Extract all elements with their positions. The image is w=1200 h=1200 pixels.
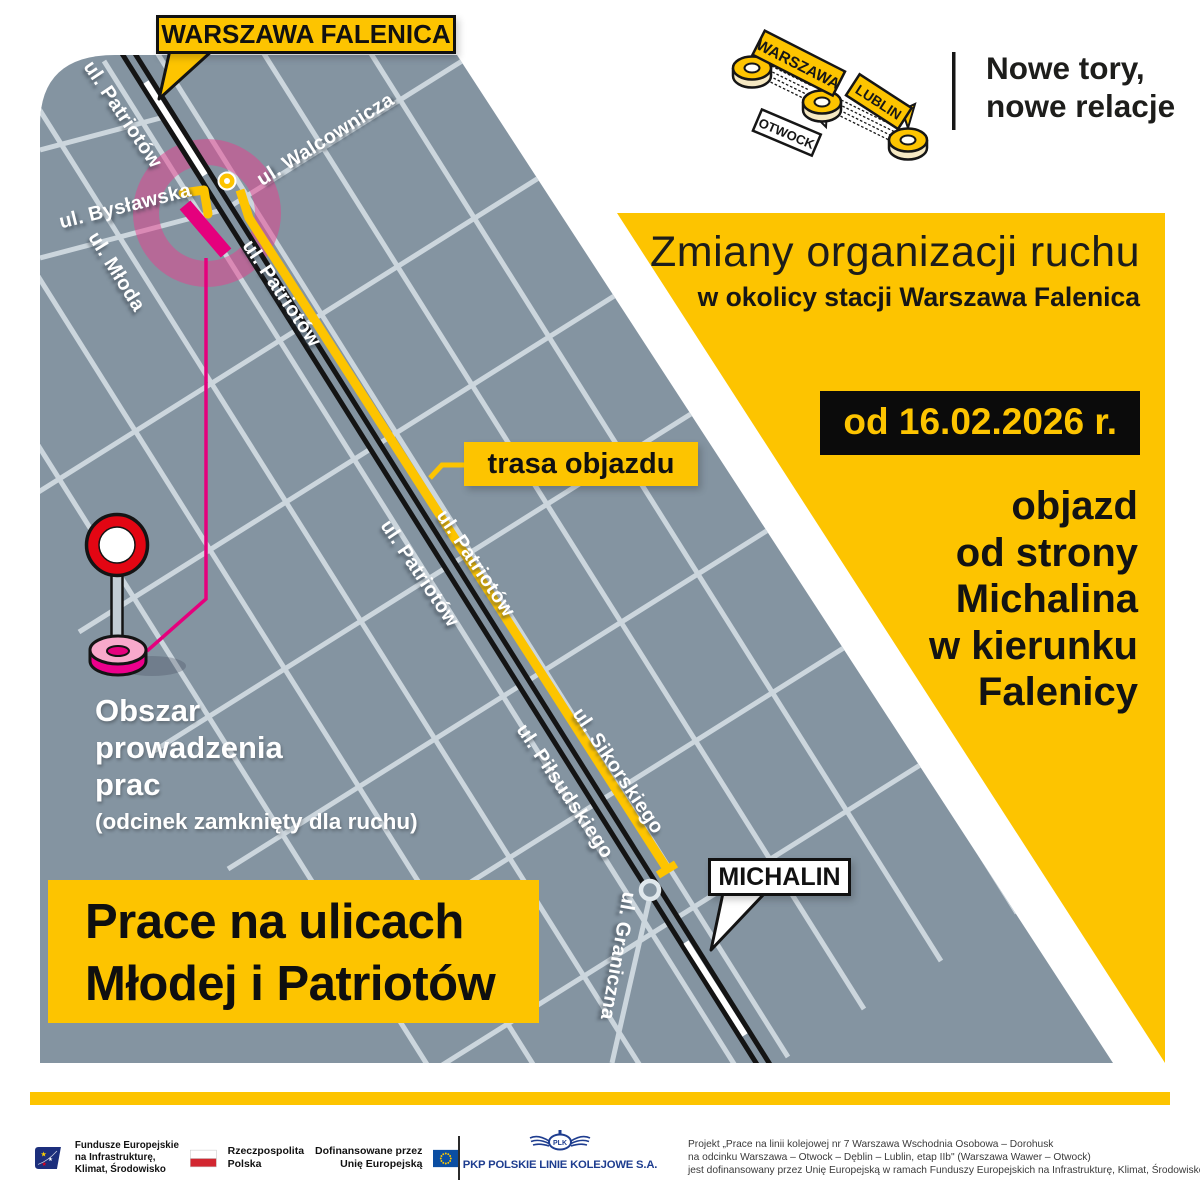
tagline-line1: Nowe tory,	[986, 50, 1175, 88]
work-area-note: (odcinek zamknięty dla ruchu)	[95, 809, 418, 835]
project-line1: Projekt „Prace na linii kolejowej nr 7 W…	[688, 1139, 1200, 1152]
fe-star-red-icon: ★	[41, 1161, 46, 1168]
rail-network-logo: WARSZAWA LUBLIN OTWOCK	[733, 30, 956, 159]
pkp-logo: PLK PKP POLSKIE LINIE KOLEJOWE S.A.	[462, 1127, 658, 1171]
footer-logos: ★ ★ ★ Fundusze Europejskie na Infrastruk…	[35, 1130, 459, 1186]
station-disc-lublin	[889, 129, 927, 160]
michalin-callout-label: MICHALIN	[718, 863, 840, 892]
falenica-callout-label: WARSZAWA FALENICA	[161, 19, 450, 50]
info-subtitle: w okolicy stacji Warszawa Falenica	[698, 282, 1140, 313]
tagline: Nowe tory, nowe relacje	[986, 50, 1175, 125]
project-description: Projekt „Prace na linii kolejowej nr 7 W…	[688, 1139, 1200, 1178]
roundabout	[641, 881, 659, 899]
eu-program-text: Fundusze Europejskie na Infrastrukturę, …	[75, 1140, 179, 1177]
project-line3: jest dofinansowany przez Unię Europejską…	[688, 1165, 1200, 1178]
eu-program-line3: Klimat, Środowisko	[75, 1164, 179, 1176]
eu-program-logo: ★ ★ ★	[35, 1137, 64, 1179]
eu-flag-icon	[433, 1143, 459, 1174]
logo-divider	[952, 52, 956, 130]
poland-line2: Polska	[228, 1158, 304, 1171]
project-line2: na odcinku Warszawa – Otwock – Dęblin – …	[688, 1152, 1200, 1165]
eu-funding-line1: Dofinansowane przez	[315, 1145, 422, 1158]
work-area-line1: Obszar	[95, 692, 418, 729]
no-entry-sign-center	[99, 527, 135, 563]
eu-funding-line2: Unię Europejską	[315, 1158, 422, 1171]
headline-banner: Prace na ulicach Młodej i Patriotów	[48, 880, 539, 1023]
fe-star-white-icon: ★	[48, 1157, 53, 1163]
detour-line1: objazd	[929, 483, 1138, 530]
detour-callout-label: trasa objazdu	[488, 448, 675, 481]
eu-program-line1: Fundusze Europejskie	[75, 1140, 179, 1152]
poland-text: Rzeczpospolita Polska	[228, 1145, 304, 1171]
work-area-line3: prac	[95, 766, 418, 803]
work-area-line2: prowadzenia	[95, 729, 418, 766]
crossing-node-center	[224, 178, 230, 184]
eu-funding-text: Dofinansowane przez Unię Europejską	[315, 1145, 422, 1171]
footer-accent-bar	[30, 1092, 1170, 1105]
pkp-emblem-label: PLK	[553, 1140, 567, 1147]
pkp-name: PKP POLSKIE LINIE KOLEJOWE S.A.	[462, 1159, 658, 1171]
headline-line1: Prace na ulicach	[85, 891, 539, 953]
detour-line2: od strony	[929, 530, 1138, 577]
fe-star-yellow-icon: ★	[40, 1151, 46, 1159]
lublin-banner: LUBLIN	[846, 74, 912, 129]
info-title: Zmiany organizacji ruchu	[650, 228, 1140, 277]
detour-line4: w kierunku	[929, 623, 1138, 670]
poster: WARSZAWA LUBLIN OTWOCK Nowe tory, nowe r…	[0, 0, 1200, 1200]
station-disc-otwock	[803, 91, 841, 122]
tagline-line2: nowe relacje	[986, 88, 1175, 126]
eu-program-line2: na Infrastrukturę,	[75, 1152, 179, 1164]
michalin-callout: MICHALIN	[708, 858, 851, 896]
date-badge: od 16.02.2026 r.	[820, 391, 1140, 455]
detour-callout: trasa objazdu	[464, 442, 698, 486]
detour-description: objazd od strony Michalina w kierunku Fa…	[929, 483, 1138, 716]
poland-line1: Rzeczpospolita	[228, 1145, 304, 1158]
detour-line5: Falenicy	[929, 669, 1138, 716]
footer-divider	[458, 1136, 460, 1180]
falenica-callout: WARSZAWA FALENICA	[156, 15, 456, 54]
pkp-emblem-icon: PLK	[528, 1127, 592, 1153]
headline-line2: Młodej i Patriotów	[85, 953, 539, 1015]
work-area-caption: Obszar prowadzenia prac (odcinek zamknię…	[95, 692, 418, 835]
detour-line3: Michalina	[929, 576, 1138, 623]
poland-flag-icon	[190, 1143, 217, 1174]
marker-base-hole	[107, 646, 129, 656]
